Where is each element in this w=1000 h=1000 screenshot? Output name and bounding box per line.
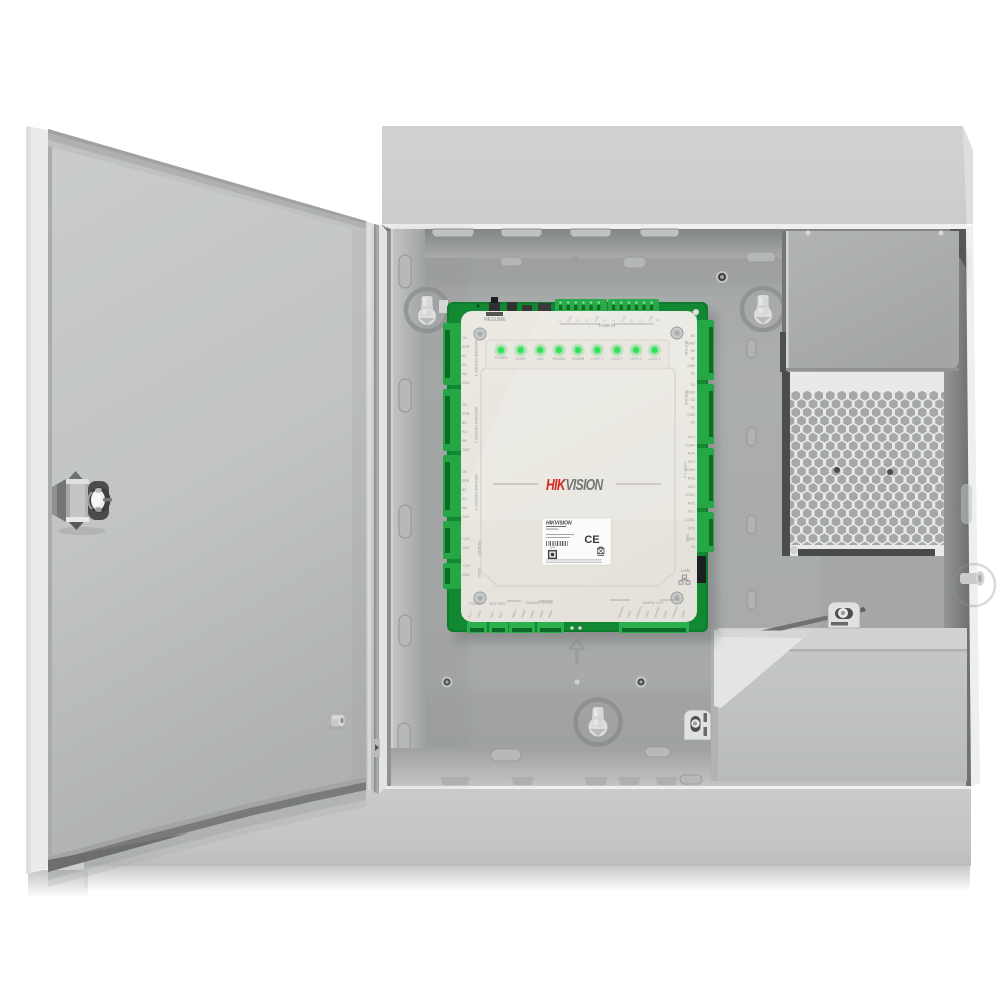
svg-text:LAN: LAN xyxy=(537,357,544,361)
svg-text:S/N:: S/N: xyxy=(550,546,556,550)
svg-text:OK: OK xyxy=(462,336,468,340)
svg-text:NO1: NO1 xyxy=(688,526,695,530)
svg-text:LOCK 1-4: LOCK 1-4 xyxy=(683,462,687,478)
svg-text:STATE: STATE xyxy=(515,357,526,361)
svg-text:VISION: VISION xyxy=(566,476,605,494)
svg-text:POWER: POWER xyxy=(469,602,483,606)
svg-text:CE: CE xyxy=(584,534,599,546)
svg-text:W1: W1 xyxy=(462,497,467,501)
svg-text:S3: S3 xyxy=(691,398,695,402)
svg-text:BUTTON: BUTTON xyxy=(684,341,688,356)
svg-text:READER: READER xyxy=(477,541,481,556)
svg-text:ALARM OUT: ALARM OUT xyxy=(643,601,665,605)
svg-text:NC2: NC2 xyxy=(688,485,695,489)
svg-text:OK: OK xyxy=(462,470,468,474)
svg-text:GND: GND xyxy=(462,573,470,577)
svg-text:RS485B: RS485B xyxy=(572,357,585,361)
svg-text:FIRE: FIRE xyxy=(685,534,689,543)
svg-text:RESUME: RESUME xyxy=(484,317,506,323)
svg-text:LOCK 4: LOCK 4 xyxy=(649,357,661,361)
svg-text:READER RS485: READER RS485 xyxy=(526,601,553,605)
svg-text:+12V: +12V xyxy=(462,537,471,541)
svg-text:GND: GND xyxy=(462,515,470,519)
svg-text:GND: GND xyxy=(687,364,695,368)
svg-text:POWER: POWER xyxy=(495,356,508,360)
svg-text:B4: B4 xyxy=(691,334,695,338)
svg-text:B2: B2 xyxy=(691,357,695,361)
svg-text:LOCK 2: LOCK 2 xyxy=(611,357,623,361)
svg-text:LOCK: LOCK xyxy=(477,568,481,578)
svg-text:OK: OK xyxy=(462,403,468,407)
svg-text:RS485A: RS485A xyxy=(553,357,566,361)
svg-text:HIK: HIK xyxy=(546,476,566,494)
svg-text:BATTERY: BATTERY xyxy=(490,602,507,606)
svg-text:W1: W1 xyxy=(462,363,467,367)
svg-text:S2: S2 xyxy=(691,406,695,410)
svg-text:W1: W1 xyxy=(462,430,467,434)
svg-text:IN: IN xyxy=(692,545,696,549)
svg-text:HIKVISION: HIKVISION xyxy=(546,521,572,527)
svg-text:GND: GND xyxy=(462,546,470,550)
svg-text:ERR: ERR xyxy=(462,412,470,416)
svg-text:NO4: NO4 xyxy=(688,452,695,456)
svg-text:GND: GND xyxy=(462,448,470,452)
svg-text:GND: GND xyxy=(462,381,470,385)
svg-text:S1: S1 xyxy=(691,421,695,425)
svg-text:W0: W0 xyxy=(462,372,467,376)
svg-text:NC1: NC1 xyxy=(688,510,695,514)
svg-text:COM1: COM1 xyxy=(685,518,695,522)
svg-text:W0: W0 xyxy=(462,506,467,510)
svg-text:LOCK 1: LOCK 1 xyxy=(591,357,603,361)
svg-text:ERR: ERR xyxy=(462,345,470,349)
svg-text:NC3: NC3 xyxy=(688,460,695,464)
svg-text:COM4: COM4 xyxy=(685,443,695,447)
svg-text:SENSOR: SENSOR xyxy=(684,390,688,406)
svg-text:WIEGAND READER 1: WIEGAND READER 1 xyxy=(474,340,478,376)
svg-text:CASE IN: CASE IN xyxy=(599,323,616,328)
svg-text:S4: S4 xyxy=(691,383,695,387)
svg-text:COM2: COM2 xyxy=(685,493,695,497)
svg-text:LOCK 3: LOCK 3 xyxy=(630,357,642,361)
svg-text:GND: GND xyxy=(687,413,695,417)
svg-text:NC4: NC4 xyxy=(688,435,695,439)
svg-text:B3: B3 xyxy=(691,349,695,353)
svg-text:W0: W0 xyxy=(462,439,467,443)
svg-text:WIEGAND READER 2: WIEGAND READER 2 xyxy=(474,407,478,443)
svg-text:NO3: NO3 xyxy=(688,477,695,481)
svg-text:WIEGAND READER 3: WIEGAND READER 3 xyxy=(474,474,478,510)
svg-text:+12V: +12V xyxy=(462,564,471,568)
svg-text:NO2: NO2 xyxy=(688,501,695,505)
svg-text:ERR: ERR xyxy=(462,479,470,483)
svg-text:LAN: LAN xyxy=(681,568,690,573)
svg-text:B1: B1 xyxy=(691,372,695,376)
